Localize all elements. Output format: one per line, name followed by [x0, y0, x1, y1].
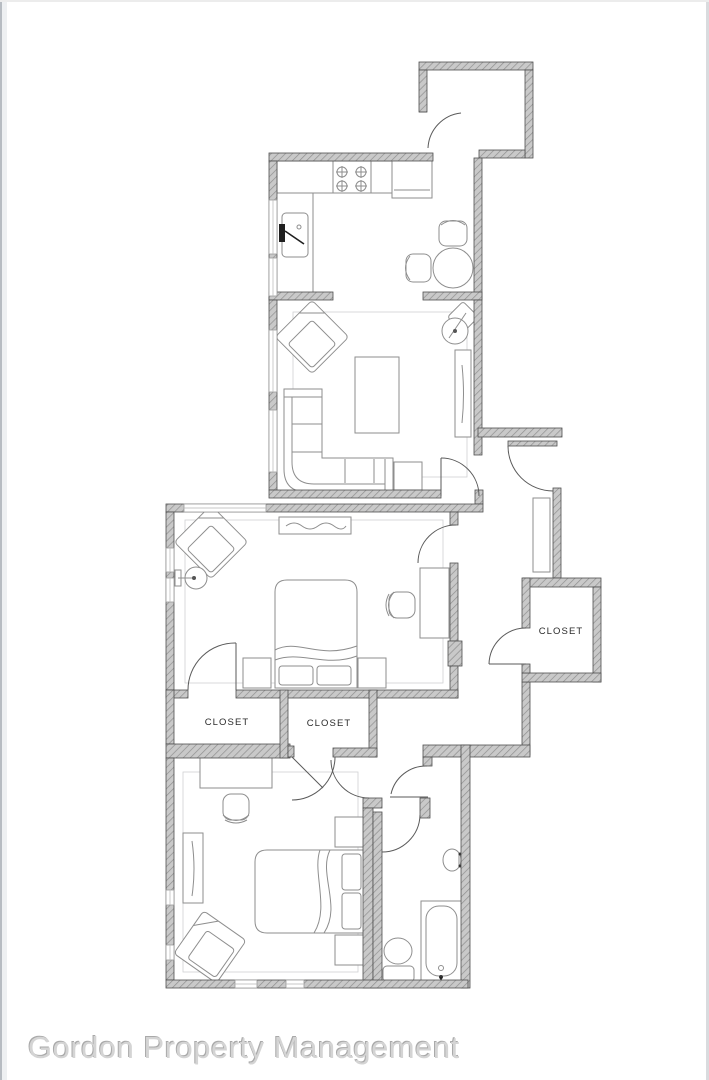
floor-lamp-living [442, 301, 479, 344]
window [184, 504, 266, 512]
bedroom2-door [331, 760, 369, 798]
dresser-bedroom1 [279, 517, 351, 534]
entry-door [419, 112, 461, 148]
tv-console [455, 350, 471, 437]
watermark-text: Gordon Property Management [28, 1030, 460, 1066]
hall-shelf [533, 498, 550, 572]
kitchen-sink [279, 213, 308, 257]
floor-plan: CLOSET CLOSET CLOSET [0, 0, 709, 1080]
window [166, 578, 174, 602]
bedroom-1 [174, 505, 449, 688]
window [235, 980, 257, 988]
bathroom-sink [443, 849, 462, 871]
desk-bedroom2 [200, 755, 272, 788]
accent-chair-living [275, 300, 349, 374]
window [269, 200, 277, 254]
dresser-bedroom2 [183, 833, 203, 903]
bathtub [421, 901, 462, 983]
bathroom [383, 849, 462, 983]
bathroom-door [382, 815, 420, 852]
dining-table [433, 248, 473, 288]
window [166, 945, 174, 960]
wall-lamp-bedroom1 [175, 567, 207, 589]
side-table [394, 462, 422, 490]
refrigerator [392, 160, 432, 198]
window [269, 330, 277, 392]
hall-vestibule-door [390, 766, 428, 797]
dining-chair-left [406, 254, 432, 282]
nightstand-top [335, 817, 365, 847]
nightstand-left [243, 658, 271, 688]
stove [333, 161, 371, 193]
closet-label-bedroom1: CLOSET [205, 717, 250, 728]
dining-chair-top [439, 221, 467, 247]
hall-closet-door [489, 628, 526, 664]
desk-chair-bedroom2 [223, 794, 249, 823]
bedroom-2 [174, 755, 365, 983]
bedroom2-closet-door [292, 757, 335, 800]
coffee-table [355, 357, 399, 433]
toilet [383, 938, 414, 982]
bed-bedroom1 [275, 580, 357, 688]
kitchen-counter [277, 161, 333, 193]
bed-bedroom2 [255, 850, 364, 933]
closet-label-bedroom2: CLOSET [307, 718, 352, 729]
bedroom1-door [418, 525, 456, 563]
nightstand-right [358, 658, 386, 688]
desk-bedroom1 [420, 568, 449, 638]
closet-label-hall: CLOSET [539, 626, 584, 637]
living-room [275, 300, 478, 492]
window [166, 548, 174, 572]
desk-chair-bedroom1 [386, 592, 415, 618]
window [166, 890, 174, 905]
hall-door [508, 446, 553, 491]
kitchen-counter-2 [371, 161, 392, 193]
nightstand-bottom [335, 935, 365, 965]
window [286, 980, 304, 988]
kitchen [277, 160, 473, 292]
window [269, 410, 277, 472]
window [269, 258, 277, 296]
